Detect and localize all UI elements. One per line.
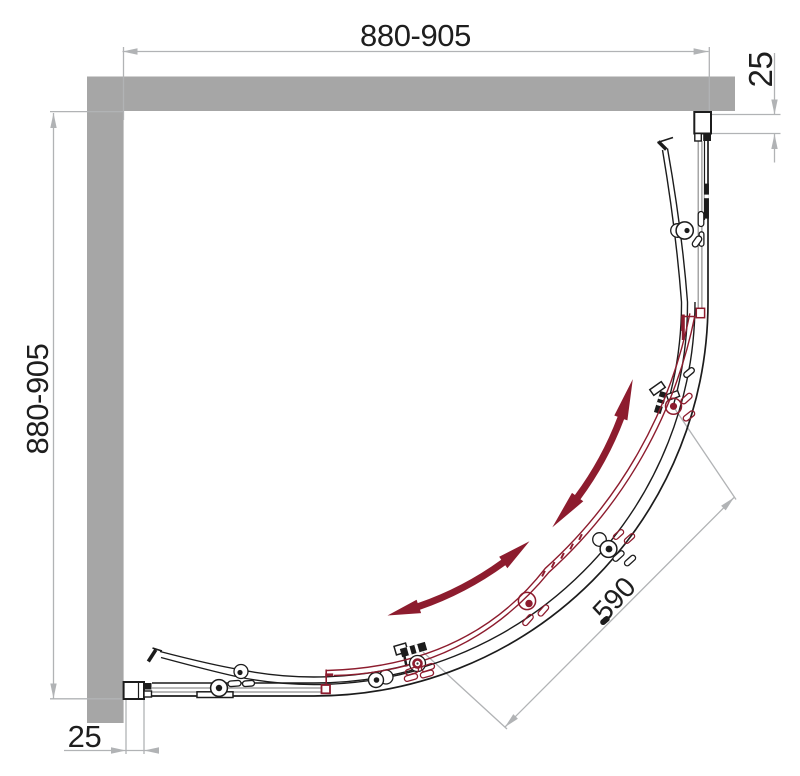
svg-text:880-905: 880-905 [360, 18, 471, 53]
svg-text:25: 25 [742, 52, 779, 88]
svg-text:880-905: 880-905 [20, 344, 55, 455]
svg-text:25: 25 [68, 719, 102, 754]
